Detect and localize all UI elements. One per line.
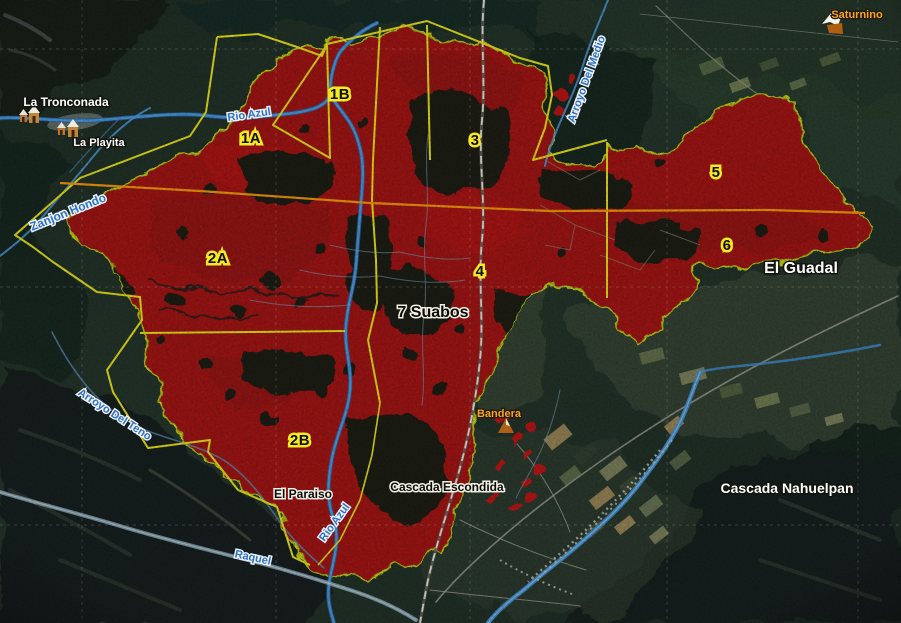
zone-label-1a: 1A — [241, 130, 261, 147]
place-label-7-suabos: 7 Suabos — [397, 304, 468, 321]
place-label-saturnino: Saturnino — [831, 9, 883, 21]
zone-label-4: 4 — [476, 263, 485, 280]
place-label-cascada-nahuelpan: Cascada Nahuelpan — [720, 480, 853, 496]
place-label-cascada-escondida: Cascada Escondida — [390, 480, 504, 494]
place-label-el-paraiso: El Paraiso — [274, 487, 332, 501]
place-label-el-guadal: El Guadal — [764, 260, 838, 277]
place-label-la-playita: La Playita — [73, 137, 125, 149]
zone-label-5: 5 — [712, 164, 721, 181]
zone-label-3: 3 — [471, 132, 480, 149]
zone-label-6: 6 — [723, 237, 732, 254]
zone-label-2a: 2A — [208, 250, 228, 267]
place-label-bandera: Bandera — [477, 408, 522, 420]
map-canvas: Rio Azul Zanjon Hondo Arroyo Del Medio A… — [0, 0, 901, 623]
fire-severity-map[interactable]: Rio Azul Zanjon Hondo Arroyo Del Medio A… — [0, 0, 901, 623]
zone-label-2b: 2B — [290, 432, 310, 449]
place-label-la-tronconada: La Tronconada — [23, 95, 109, 109]
zone-label-1b: 1B — [330, 86, 350, 103]
